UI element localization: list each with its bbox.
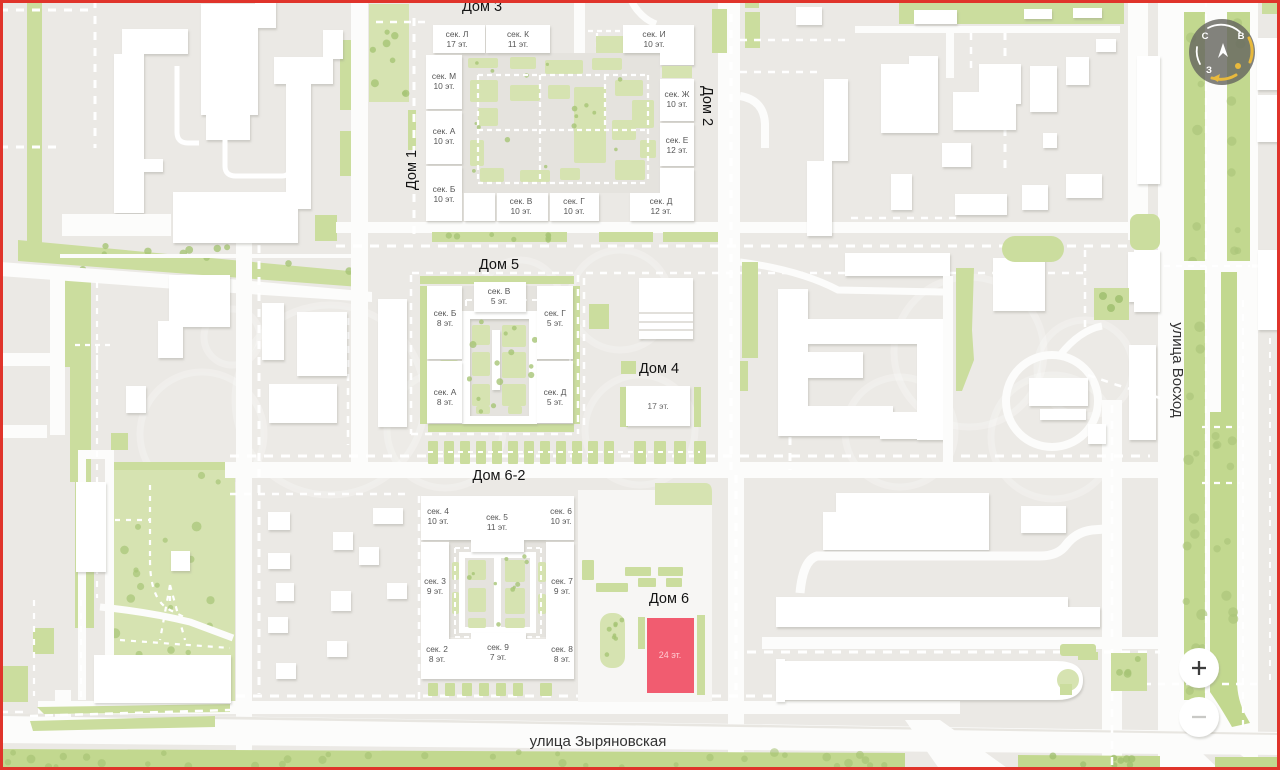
svg-text:сек. 3: сек. 3 bbox=[424, 576, 446, 586]
svg-text:сек. 7: сек. 7 bbox=[551, 576, 573, 586]
svg-text:сек. Б: сек. Б bbox=[434, 308, 457, 318]
svg-text:сек. А: сек. А bbox=[433, 126, 456, 136]
svg-text:сек. А: сек. А bbox=[434, 387, 457, 397]
svg-text:Дом 5: Дом 5 bbox=[479, 257, 519, 273]
svg-text:9 эт.: 9 эт. bbox=[427, 586, 443, 596]
svg-text:З: З bbox=[1206, 65, 1212, 76]
svg-text:сек. В: сек. В bbox=[510, 196, 533, 206]
svg-text:11 эт.: 11 эт. bbox=[508, 39, 528, 49]
svg-text:Дом 2: Дом 2 bbox=[699, 86, 715, 126]
svg-text:10 эт.: 10 эт. bbox=[434, 81, 455, 91]
svg-text:сек. Г: сек. Г bbox=[563, 196, 585, 206]
svg-text:17 эт.: 17 эт. bbox=[447, 39, 468, 49]
svg-text:17 эт.: 17 эт. bbox=[647, 401, 668, 411]
svg-text:сек. К: сек. К bbox=[507, 29, 529, 39]
svg-text:5 эт.: 5 эт. bbox=[547, 397, 563, 407]
svg-text:сек. М: сек. М bbox=[432, 71, 456, 81]
svg-text:сек. Д: сек. Д bbox=[650, 196, 673, 206]
svg-text:сек. И: сек. И bbox=[642, 29, 665, 39]
svg-text:Дом 1: Дом 1 bbox=[404, 150, 420, 190]
svg-text:сек. Г: сек. Г bbox=[544, 308, 566, 318]
svg-text:9 эт.: 9 эт. bbox=[554, 586, 570, 596]
svg-text:сек. Ж: сек. Ж bbox=[665, 89, 690, 99]
svg-text:10 эт.: 10 эт. bbox=[644, 39, 665, 49]
svg-text:24 эт.: 24 эт. bbox=[659, 650, 682, 660]
svg-text:С: С bbox=[1202, 31, 1209, 42]
svg-text:10 эт.: 10 эт. bbox=[434, 194, 455, 204]
svg-text:12 эт.: 12 эт. bbox=[651, 206, 672, 216]
svg-text:10 эт.: 10 эт. bbox=[564, 206, 585, 216]
svg-text:улица Восход: улица Восход bbox=[1169, 322, 1186, 418]
svg-text:В: В bbox=[1238, 31, 1245, 42]
svg-text:10 эт.: 10 эт. bbox=[511, 206, 532, 216]
svg-text:сек. Л: сек. Л bbox=[446, 29, 469, 39]
svg-text:12 эт.: 12 эт. bbox=[667, 145, 688, 155]
svg-text:сек. 9: сек. 9 bbox=[487, 642, 509, 652]
svg-text:5 эт.: 5 эт. bbox=[547, 318, 563, 328]
svg-text:10 эт.: 10 эт. bbox=[667, 99, 688, 109]
svg-text:сек. Е: сек. Е bbox=[666, 135, 689, 145]
svg-text:8 эт.: 8 эт. bbox=[437, 318, 453, 328]
svg-text:Дом 6: Дом 6 bbox=[649, 591, 689, 607]
svg-text:улица Зыряновская: улица Зыряновская bbox=[530, 733, 667, 750]
svg-text:Дом 6-2: Дом 6-2 bbox=[472, 468, 525, 484]
svg-text:7 эт.: 7 эт. bbox=[490, 652, 506, 662]
svg-text:сек. Д: сек. Д bbox=[544, 387, 567, 397]
svg-text:Дом 4: Дом 4 bbox=[639, 361, 679, 377]
svg-text:сек. Б: сек. Б bbox=[433, 184, 456, 194]
svg-text:11 эт.: 11 эт. bbox=[487, 522, 507, 532]
svg-text:10 эт.: 10 эт. bbox=[428, 516, 449, 526]
svg-text:10 эт.: 10 эт. bbox=[551, 516, 572, 526]
svg-text:5 эт.: 5 эт. bbox=[491, 296, 507, 306]
svg-text:8 эт.: 8 эт. bbox=[554, 654, 570, 664]
svg-text:сек. 6: сек. 6 bbox=[550, 506, 572, 516]
svg-text:сек. В: сек. В bbox=[488, 286, 511, 296]
svg-text:8 эт.: 8 эт. bbox=[437, 397, 453, 407]
svg-text:10 эт.: 10 эт. bbox=[434, 136, 455, 146]
svg-text:сек. 8: сек. 8 bbox=[551, 644, 573, 654]
svg-text:сек. 2: сек. 2 bbox=[426, 644, 448, 654]
svg-text:сек. 5: сек. 5 bbox=[486, 512, 508, 522]
svg-text:8 эт.: 8 эт. bbox=[429, 654, 445, 664]
svg-text:сек. 4: сек. 4 bbox=[427, 506, 449, 516]
